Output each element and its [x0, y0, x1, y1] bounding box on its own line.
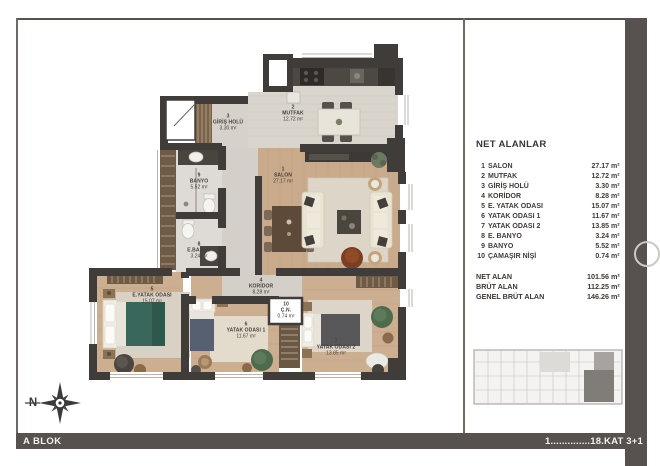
compass-north-label: N	[29, 397, 37, 409]
area-table: 1SALON27.17m² 2MUTFAK12.72m² 3GİRİŞ HOLÜ…	[476, 161, 622, 262]
table-row: 1SALON27.17m²	[476, 161, 622, 171]
room-label-camasir-nisi: 10Ç.N.0.74 m²	[278, 302, 295, 319]
floor-range: 1..............18.KAT 3+1	[545, 433, 643, 449]
table-row: 7YATAK ODASI 213.85m²	[476, 222, 622, 232]
entry-recess	[166, 100, 195, 140]
room-label-giris-holu: 3GİRİŞ HOLÜ3.30 m²	[213, 114, 243, 131]
footer-bar: A BLOK 1..............18.KAT 3+1	[16, 433, 647, 449]
table-row: 10ÇAMAŞIR NİŞİ0.74m²	[476, 252, 622, 262]
table-row: 2MUTFAK12.72m²	[476, 171, 622, 181]
table-row: 8E. BANYO3.24m²	[476, 232, 622, 242]
block-name: A BLOK	[23, 433, 61, 449]
table-row: 3GİRİŞ HOLÜ3.30m²	[476, 181, 622, 191]
room-label-koridor: 4KORİDOR8.28 m²	[249, 278, 273, 295]
decor-circle	[634, 241, 660, 267]
net-areas-panel: NET ALANLAR 1SALON27.17m² 2MUTFAK12.72m²…	[476, 139, 622, 302]
total-row: GENEL BRÜT ALAN146.26m²	[476, 291, 622, 301]
table-row: 5E. YATAK ODASI15.07m²	[476, 201, 622, 211]
shaft-void	[269, 60, 287, 86]
room-label-e-banyo: 8E.BANYO3.24 m²	[187, 242, 210, 259]
table-row: 4KORİDOR8.28m²	[476, 191, 622, 201]
totals-table: NET ALAN101.56m² BRÜT ALAN112.25m² GENEL…	[476, 271, 622, 302]
room-label-yatak-odasi-2: 7YATAK ODASI 213.85 m²	[317, 339, 356, 356]
room-label-e-yatak-odasi: 5E.YATAK ODASI15.07 m²	[132, 287, 171, 304]
total-row: BRÜT ALAN112.25m²	[476, 281, 622, 291]
room-label-yatak-odasi-1: 6YATAK ODASI 111.67 m²	[227, 322, 266, 339]
table-row: 6YATAK ODASI 111.67m²	[476, 211, 622, 221]
total-row: NET ALAN101.56m²	[476, 271, 622, 281]
key-plan	[474, 350, 622, 404]
key-plan-highlighted-unit	[584, 370, 614, 402]
panel-title: NET ALANLAR	[476, 139, 622, 150]
table-row: 9BANYO5.52m²	[476, 242, 622, 252]
room-label-salon: 1SALON27.17 m²	[273, 167, 293, 184]
room-label-mutfak: 2MUTFAK12.72 m²	[282, 105, 303, 122]
room-label-banyo: 9BANYO5.52 m²	[190, 173, 209, 190]
brochure-page: 1SALON27.17 m² 2MUTFAK12.72 m² 3GİRİŞ HO…	[0, 0, 660, 466]
